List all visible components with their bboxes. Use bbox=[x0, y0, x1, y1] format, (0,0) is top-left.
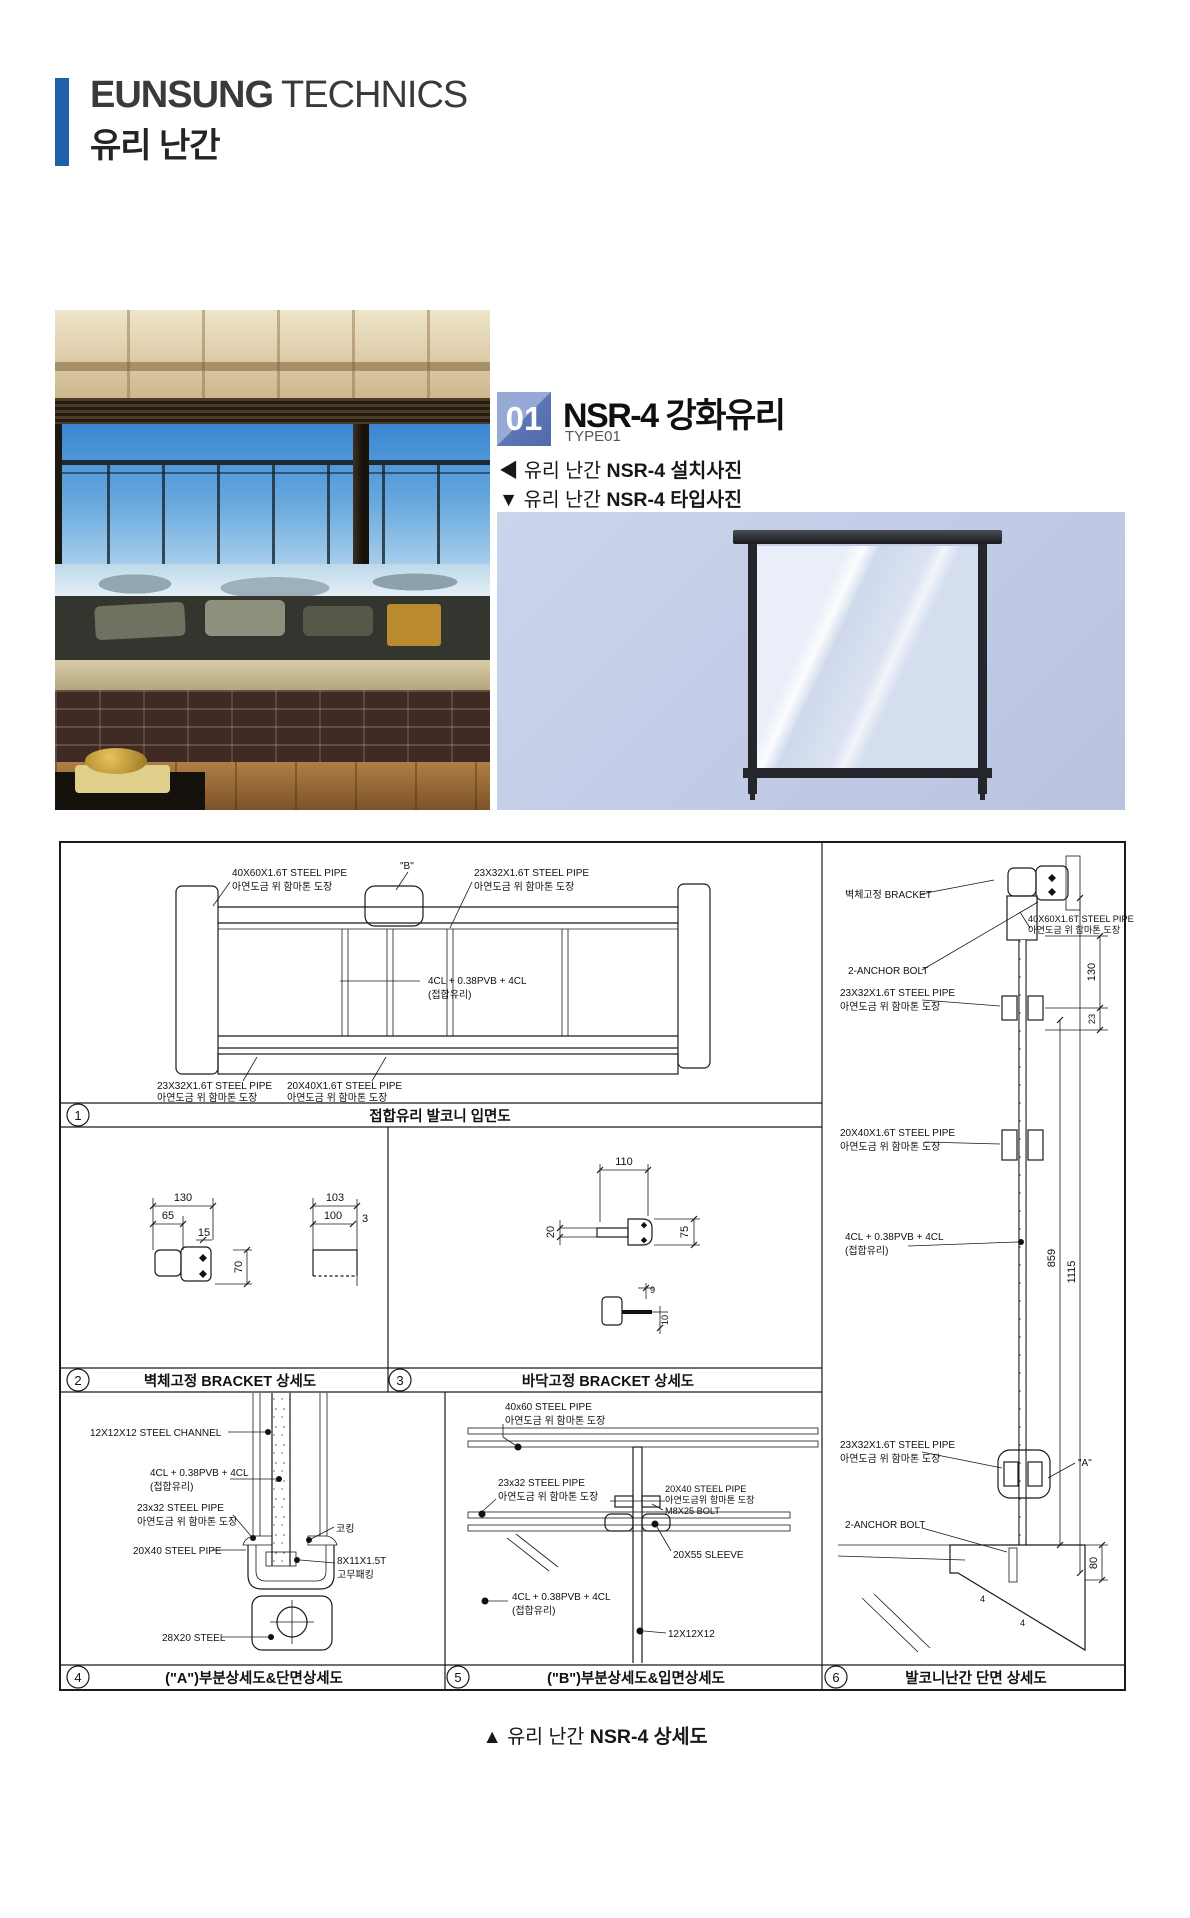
svg-text:아연도금 위 함마톤 도장: 아연도금 위 함마톤 도장 bbox=[287, 1091, 387, 1104]
label-20x40: 20X40X1.6T STEEL PIPE bbox=[840, 1128, 955, 1139]
svg-text:M8X25 BOLT: M8X25 BOLT bbox=[665, 1506, 720, 1516]
concrete-mark: 4 bbox=[980, 1594, 985, 1604]
label-detail-b: "B" bbox=[400, 861, 414, 872]
svg-text:아연도금 위 함마톤 도장: 아연도금 위 함마톤 도장 bbox=[498, 1490, 598, 1503]
label-glass: 4CL + 0.38PVB + 4CL bbox=[512, 1592, 611, 1603]
panel-number: 1 bbox=[74, 1108, 81, 1123]
panel-number: 5 bbox=[454, 1670, 461, 1685]
label-40x60: 40x60 STEEL PIPE bbox=[505, 1402, 592, 1413]
svg-text:아연도금 위 함마톤 도장: 아연도금 위 함마톤 도장 bbox=[505, 1414, 605, 1427]
label-20x40: 20X40 STEEL PIPE bbox=[133, 1546, 222, 1557]
label-23x32: 23x32 STEEL PIPE bbox=[498, 1478, 585, 1489]
dim-100: 100 bbox=[324, 1210, 342, 1222]
label-12x12x12: 12X12X12 bbox=[668, 1629, 715, 1640]
svg-text:아연도금 위 함마톤 도장: 아연도금 위 함마톤 도장 bbox=[137, 1515, 237, 1528]
detail-b-marker bbox=[365, 886, 423, 926]
label-mid-rail: 23X32X1.6T STEEL PIPE bbox=[474, 868, 589, 879]
dim-859: 859 bbox=[1046, 1249, 1058, 1267]
panel-4-detail-a: 12X12X12 STEEL CHANNEL 4CL + 0.38PVB + 4… bbox=[90, 1393, 386, 1650]
catalog-page: EUNSUNGTECHNICS 유리 난간 01 NSR-4 강화유리 TYPE… bbox=[0, 0, 1190, 1918]
dim-65: 65 bbox=[162, 1210, 174, 1222]
panel-5-detail-b: 40x60 STEEL PIPE 아연도금 위 함마톤 도장 23x32 STE… bbox=[468, 1402, 818, 1663]
label-23x32-top: 23X32X1.6T STEEL PIPE bbox=[840, 988, 955, 999]
label-40x60: 40X60X1.6T STEEL PIPE bbox=[1028, 914, 1134, 924]
panel-caption: ("A")부분상세도&단면상세도 bbox=[165, 1670, 343, 1687]
svg-text:(접합유리): (접합유리) bbox=[150, 1481, 193, 1493]
label-rubber: 8X11X1.5T bbox=[337, 1556, 386, 1567]
label-bottom-rail: 23X32X1.6T STEEL PIPE bbox=[157, 1081, 272, 1092]
svg-text:아연도금 위 함마톤 도장: 아연도금 위 함마톤 도장 bbox=[157, 1091, 257, 1104]
label-anchor-top: 2-ANCHOR BOLT bbox=[848, 966, 928, 977]
drawing-sheet: 40X60X1.6T STEEL PIPE 아연도금 위 함마톤 도장 "B" … bbox=[0, 0, 1190, 1918]
svg-text:아연도금 위 함마톤 도장: 아연도금 위 함마톤 도장 bbox=[1028, 925, 1121, 935]
panel-2-wall-bracket: 130 65 15 70 103 100 3 bbox=[150, 1192, 368, 1287]
label-bolt: 20X40 STEEL PIPE bbox=[665, 1484, 746, 1494]
panel-caption: ("B")부분상세도&입면상세도 bbox=[547, 1670, 725, 1687]
panel-1-elevation: 40X60X1.6T STEEL PIPE 아연도금 위 함마톤 도장 "B" … bbox=[157, 861, 710, 1104]
svg-text:고무패킹: 고무패킹 bbox=[337, 1569, 374, 1581]
up-arrow-icon: ▲ bbox=[482, 1726, 501, 1748]
dim-130: 130 bbox=[174, 1192, 192, 1204]
label-anchor-bot: 2-ANCHOR BOLT bbox=[845, 1520, 925, 1531]
label-wall-bracket: 벽체고정 BRACKET bbox=[845, 889, 932, 901]
label-glass: 4CL + 0.38PVB + 4CL bbox=[150, 1468, 249, 1479]
panel-caption: 벽체고정 BRACKET 상세도 bbox=[144, 1372, 316, 1390]
detail-drawing-caption: ▲ 유리 난간 NSR-4 상세도 bbox=[0, 1720, 1190, 1749]
label-sleeve: 20X55 SLEEVE bbox=[673, 1550, 744, 1561]
dim-15: 15 bbox=[198, 1227, 210, 1239]
label-23x32-bot: 23X32X1.6T STEEL PIPE bbox=[840, 1440, 955, 1451]
dim-70: 70 bbox=[233, 1261, 245, 1273]
label-glass: 4CL + 0.38PVB + 4CL bbox=[845, 1232, 944, 1243]
svg-text:아연도금위 함마톤 도장: 아연도금위 함마톤 도장 bbox=[665, 1495, 755, 1505]
panel-number: 6 bbox=[832, 1670, 839, 1685]
label-top-rail: 40X60X1.6T STEEL PIPE bbox=[232, 868, 347, 879]
panel-3-floor-bracket: 110 20 75 9 10 bbox=[545, 1156, 700, 1334]
panel-number: 4 bbox=[74, 1670, 81, 1685]
svg-text:(접합유리): (접합유리) bbox=[845, 1245, 888, 1257]
svg-text:아연도금 위 함마톤 도장: 아연도금 위 함마톤 도장 bbox=[840, 1140, 940, 1153]
svg-text:아연도금 위 함마톤 도장: 아연도금 위 함마톤 도장 bbox=[232, 880, 332, 893]
dim-75: 75 bbox=[679, 1226, 691, 1238]
dim-3: 3 bbox=[362, 1213, 368, 1225]
dim-103: 103 bbox=[326, 1192, 344, 1204]
dim-130: 130 bbox=[1086, 963, 1098, 981]
label-channel: 12X12X12 STEEL CHANNEL bbox=[90, 1428, 222, 1439]
label-glass: 4CL + 0.38PVB + 4CL bbox=[428, 976, 527, 987]
panel-caption: 발코니난간 단면 상세도 bbox=[905, 1670, 1046, 1687]
label-caulk: 코킹 bbox=[336, 1523, 354, 1535]
panel-caption: 접합유리 발코니 입면도 bbox=[369, 1107, 510, 1125]
panel-caption: 바닥고정 BRACKET 상세도 bbox=[522, 1372, 694, 1390]
svg-text:아연도금 위 함마톤 도장: 아연도금 위 함마톤 도장 bbox=[840, 1452, 940, 1465]
svg-text:아연도금 위 함마톤 도장: 아연도금 위 함마톤 도장 bbox=[840, 1000, 940, 1013]
svg-text:(접합유리): (접합유리) bbox=[512, 1605, 555, 1617]
panel-number: 2 bbox=[74, 1373, 81, 1388]
dim-110: 110 bbox=[615, 1156, 633, 1168]
svg-text:아연도금 위 함마톤 도장: 아연도금 위 함마톤 도장 bbox=[474, 880, 574, 893]
sheet-frame bbox=[60, 842, 1125, 1690]
dim-80: 80 bbox=[1088, 1557, 1100, 1569]
svg-text:(접합유리): (접합유리) bbox=[428, 989, 471, 1001]
dim-10: 10 bbox=[660, 1315, 670, 1325]
dim-9: 9 bbox=[650, 1285, 655, 1295]
concrete-mark: 4 bbox=[1020, 1618, 1025, 1628]
label-detail-a: "A" bbox=[1078, 1458, 1092, 1469]
label-28x20: 28X20 STEEL bbox=[162, 1633, 226, 1644]
label-23x32: 23x32 STEEL PIPE bbox=[137, 1503, 224, 1514]
dim-1115: 1115 bbox=[1066, 1261, 1078, 1284]
dim-23: 23 bbox=[1087, 1014, 1097, 1024]
panel-number: 3 bbox=[396, 1373, 403, 1388]
dim-20: 20 bbox=[545, 1226, 557, 1238]
label-bottom-rail-2: 20X40X1.6T STEEL PIPE bbox=[287, 1081, 402, 1092]
